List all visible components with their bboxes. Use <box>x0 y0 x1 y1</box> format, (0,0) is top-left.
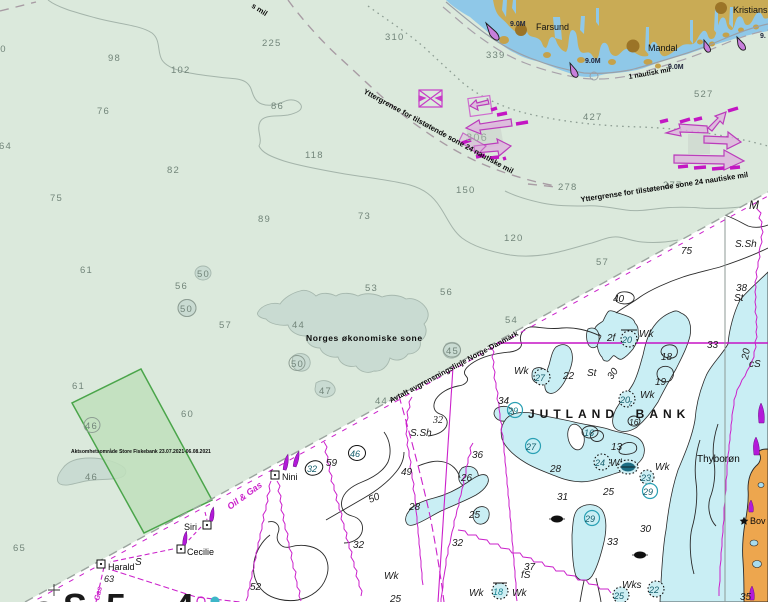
svg-text:9.: 9. <box>760 33 766 40</box>
svg-text:Siri: Siri <box>184 522 197 532</box>
svg-text:44: 44 <box>292 320 305 331</box>
svg-text:Thyborøn: Thyborøn <box>697 454 740 465</box>
svg-text:Wk: Wk <box>639 329 654 340</box>
svg-text:16: 16 <box>584 428 594 438</box>
svg-text:118: 118 <box>305 150 324 161</box>
svg-text:225: 225 <box>262 38 281 49</box>
svg-text:57: 57 <box>219 320 232 331</box>
svg-text:25: 25 <box>613 591 625 601</box>
svg-text:527: 527 <box>694 89 713 100</box>
svg-text:Wk: Wk <box>640 390 655 401</box>
svg-text:57: 57 <box>596 257 609 268</box>
svg-text:61: 61 <box>72 381 85 392</box>
svg-text:50: 50 <box>197 269 210 280</box>
svg-text:5: 5 <box>106 586 126 602</box>
svg-text:S: S <box>63 586 87 602</box>
svg-text:427: 427 <box>583 112 602 123</box>
svg-text:Wk: Wk <box>514 366 529 377</box>
svg-text:75: 75 <box>50 193 63 204</box>
svg-text:89: 89 <box>258 214 271 225</box>
svg-text:28: 28 <box>408 502 421 513</box>
svg-text:56: 56 <box>440 287 453 298</box>
svg-text:59: 59 <box>326 458 338 469</box>
svg-text:18: 18 <box>661 352 673 363</box>
svg-text:120: 120 <box>504 233 523 244</box>
svg-text:310: 310 <box>385 32 404 43</box>
svg-text:23: 23 <box>640 473 651 483</box>
svg-text:36: 36 <box>472 450 484 461</box>
svg-text:32: 32 <box>432 415 443 426</box>
svg-text:86: 86 <box>271 101 284 112</box>
svg-text:49: 49 <box>401 467 413 478</box>
svg-text:Farsund: Farsund <box>536 22 569 32</box>
svg-text:Harald: Harald <box>108 562 135 572</box>
svg-text:13: 13 <box>611 442 623 453</box>
svg-text:Wk: Wk <box>512 588 527 599</box>
svg-text:19: 19 <box>655 377 667 388</box>
svg-text:S: S <box>135 557 142 568</box>
svg-text:16: 16 <box>629 417 639 427</box>
svg-text:73: 73 <box>358 211 371 222</box>
svg-text:4: 4 <box>174 586 194 602</box>
svg-text:33: 33 <box>607 537 619 548</box>
svg-text:25: 25 <box>602 487 615 498</box>
svg-text:Wk: Wk <box>655 462 670 473</box>
svg-text:150: 150 <box>456 185 475 196</box>
svg-text:29: 29 <box>642 487 653 497</box>
svg-text:Cecilie: Cecilie <box>187 547 214 557</box>
svg-text:65: 65 <box>13 543 26 554</box>
svg-text:35: 35 <box>740 592 752 602</box>
svg-text:25: 25 <box>389 594 402 602</box>
svg-text:Nini: Nini <box>282 472 298 482</box>
svg-text:C: C <box>30 594 56 602</box>
svg-text:61: 61 <box>80 265 93 276</box>
svg-text:339: 339 <box>486 50 505 61</box>
svg-text:26: 26 <box>460 473 473 484</box>
svg-text:46: 46 <box>350 449 360 459</box>
svg-text:27: 27 <box>534 373 546 383</box>
svg-text:24: 24 <box>594 458 605 468</box>
svg-text:25: 25 <box>468 510 481 521</box>
svg-text:278: 278 <box>558 182 577 193</box>
svg-text:98: 98 <box>108 53 121 64</box>
svg-text:50: 50 <box>180 304 193 315</box>
svg-text:46: 46 <box>85 472 98 483</box>
svg-text:102: 102 <box>171 65 190 76</box>
svg-text:Mandal: Mandal <box>648 43 678 53</box>
svg-text:St: St <box>587 368 598 379</box>
svg-text:82: 82 <box>167 165 180 176</box>
svg-text:9.0M: 9.0M <box>510 21 526 28</box>
svg-text:29: 29 <box>507 406 518 416</box>
svg-text:Norges økonomiske sone: Norges økonomiske sone <box>306 333 423 343</box>
svg-text:32: 32 <box>353 540 365 551</box>
svg-text:18: 18 <box>493 587 503 597</box>
svg-text:54: 54 <box>505 315 518 326</box>
svg-text:28: 28 <box>549 464 562 475</box>
svg-text:fS: fS <box>521 570 531 581</box>
svg-text:M: M <box>749 198 759 212</box>
svg-text:JUTLAND BANK: JUTLAND BANK <box>528 407 690 421</box>
svg-text:20: 20 <box>621 335 632 345</box>
svg-text:76: 76 <box>97 106 110 117</box>
svg-text:56: 56 <box>175 281 188 292</box>
svg-text:9.0M: 9.0M <box>585 58 601 65</box>
svg-text:Bov: Bov <box>750 516 766 526</box>
svg-text:32: 32 <box>452 538 464 549</box>
svg-text:64: 64 <box>0 141 12 152</box>
svg-text:30: 30 <box>640 524 652 535</box>
svg-text:63: 63 <box>104 574 114 584</box>
svg-text:40: 40 <box>613 294 625 305</box>
svg-text:47: 47 <box>319 386 332 397</box>
svg-text:33: 33 <box>707 340 719 351</box>
svg-text:32: 32 <box>307 464 317 474</box>
svg-text:31: 31 <box>557 492 568 503</box>
svg-text:75: 75 <box>681 246 693 257</box>
svg-text:29: 29 <box>584 514 595 524</box>
svg-text:22: 22 <box>562 371 575 382</box>
svg-text:S.Sh: S.Sh <box>410 428 432 439</box>
svg-text:2f: 2f <box>606 333 617 344</box>
svg-text:Aktsomhetsområde Store Fiskeba: Aktsomhetsområde Store Fiskebank 23.07.2… <box>71 448 211 455</box>
svg-text:60: 60 <box>181 409 194 420</box>
svg-text:27: 27 <box>525 442 537 452</box>
svg-text:Kristians: Kristians <box>733 5 768 15</box>
svg-text:110: 110 <box>0 44 7 55</box>
svg-text:S.Sh: S.Sh <box>735 239 757 250</box>
svg-text:22: 22 <box>648 585 659 595</box>
svg-text:52: 52 <box>250 582 262 593</box>
svg-text:Wk: Wk <box>384 571 399 582</box>
svg-text:53: 53 <box>365 283 378 294</box>
svg-text:Wk: Wk <box>469 588 484 599</box>
svg-text:20: 20 <box>740 347 753 361</box>
